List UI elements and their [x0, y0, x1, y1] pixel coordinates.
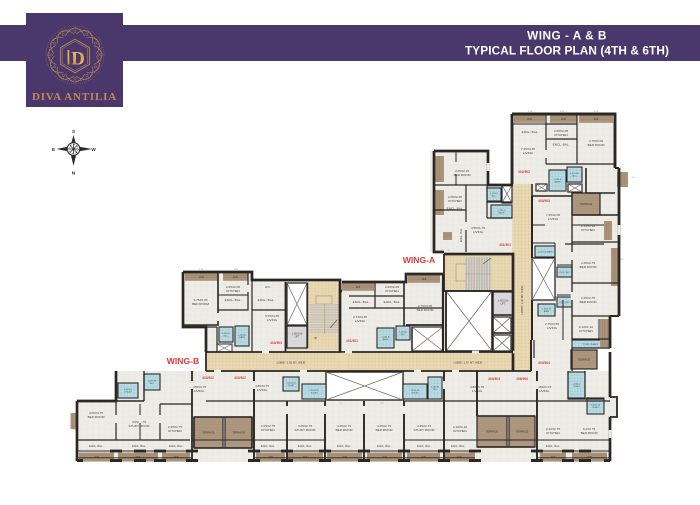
svg-text:1.2X1.85: 1.2X1.85	[570, 173, 580, 175]
svg-text:1.2X1.8: 1.2X1.8	[554, 179, 562, 181]
svg-text:ENCL. BAL.: ENCL. BAL.	[261, 444, 275, 448]
svg-text:W.C.: W.C.	[265, 285, 271, 289]
svg-text:ENCL. BAL.: ENCL. BAL.	[337, 444, 351, 448]
svg-text:W.B: W.B	[422, 278, 427, 281]
svg-text:402/902: 402/902	[234, 376, 246, 380]
svg-text:BATH: BATH	[544, 310, 550, 313]
svg-text:UP: UP	[314, 336, 318, 340]
svg-text:W.C.: W.C.	[572, 176, 577, 178]
svg-text:1.5X1.2: 1.5X1.2	[124, 389, 132, 391]
svg-text:1.5X1.2 W.C.: 1.5X1.2 W.C.	[559, 272, 571, 274]
svg-text:BATH: BATH	[239, 336, 245, 339]
svg-text:W.C.: W.C.	[433, 389, 438, 391]
svg-text:W.C.: W.C.	[150, 383, 155, 385]
svg-text:ENCL. BAL.: ENCL. BAL.	[546, 444, 560, 448]
svg-text:1.75X2.35 BATH: 1.75X2.35 BATH	[538, 250, 553, 253]
svg-text:BED ROOM: BED ROOM	[192, 302, 209, 306]
svg-text:1.2X1.2: 1.2X1.2	[222, 333, 230, 335]
svg-text:C.L.: C.L.	[339, 403, 343, 405]
svg-text:E: E	[52, 147, 55, 152]
svg-text:N: N	[72, 171, 76, 177]
svg-text:1.2X1.2: 1.2X1.2	[498, 210, 506, 212]
svg-text:ENCL. BAL.: ENCL. BAL.	[522, 130, 539, 134]
svg-text:TERRACE: TERRACE	[516, 430, 529, 434]
svg-text:LIVING: LIVING	[523, 151, 534, 155]
svg-text:WING - A & B: WING - A & B	[527, 29, 607, 43]
svg-text:401/901: 401/901	[499, 243, 511, 247]
svg-text:W.B: W.B	[527, 118, 532, 121]
svg-text:BED ROOM: BED ROOM	[588, 143, 605, 147]
svg-text:TERRACE: TERRACE	[202, 431, 215, 435]
svg-text:STUDY ROOM: STUDY ROOM	[414, 428, 435, 432]
svg-text:BED ROOM: BED ROOM	[376, 428, 393, 432]
svg-text:KITCHEN: KITCHEN	[546, 431, 560, 435]
svg-text:1.2X1.8: 1.2X1.8	[399, 331, 407, 333]
svg-text:ENCL. BAL.: ENCL. BAL.	[459, 228, 463, 243]
svg-text:402/902: 402/902	[202, 376, 214, 380]
svg-text:1.2X1.8: 1.2X1.8	[238, 334, 246, 336]
svg-text:TERRACE: TERRACE	[232, 431, 245, 435]
svg-text:TOILET: TOILET	[573, 386, 581, 388]
svg-text:TOILET: TOILET	[288, 385, 296, 387]
svg-text:ENCL. BAL.: ENCL. BAL.	[451, 444, 465, 448]
svg-text:ENCL. BAL.: ENCL. BAL.	[89, 444, 103, 448]
svg-text:1.45X1.80: 1.45X1.80	[292, 334, 303, 336]
svg-text:W.C.: W.C.	[224, 336, 229, 338]
svg-text:LIVING: LIVING	[539, 389, 550, 393]
svg-text:LIFT: LIFT	[295, 336, 300, 338]
svg-text:TOILET: TOILET	[411, 393, 419, 395]
svg-text:BED ROOM: BED ROOM	[580, 265, 597, 269]
svg-text:1.2X1.2: 1.2X1.2	[490, 193, 498, 195]
svg-text:WING-B: WING-B	[167, 356, 199, 366]
svg-text:2.10X1.25: 2.10X1.25	[309, 390, 319, 392]
svg-text:403/903: 403/903	[270, 341, 282, 345]
svg-text:406/906: 406/906	[516, 377, 528, 381]
svg-text:KITCHEN: KITCHEN	[261, 428, 275, 432]
svg-text:STUDY ROOM: STUDY ROOM	[295, 428, 316, 432]
svg-text:ENCL. BAL.: ENCL. BAL.	[377, 444, 391, 448]
svg-text:LIVING: LIVING	[355, 319, 366, 323]
svg-text:KITCHEN: KITCHEN	[168, 429, 182, 433]
svg-text:LIVING: LIVING	[547, 326, 558, 330]
svg-text:LIVING: LIVING	[548, 217, 559, 221]
svg-text:403/903: 403/903	[538, 199, 550, 203]
svg-text:LIVING: LIVING	[257, 388, 268, 392]
svg-text:ENCL. BAL.: ENCL. BAL.	[353, 300, 370, 304]
svg-text:BED ROOM: BED ROOM	[88, 415, 105, 419]
svg-text:KITCHEN: KITCHEN	[453, 429, 467, 433]
svg-text:S: S	[72, 129, 75, 134]
svg-text:ENCL. BAL.: ENCL. BAL.	[384, 300, 401, 304]
svg-text:1.2X2.5: 1.2X2.5	[573, 383, 581, 385]
svg-text:7.50X1.20 BATH: 7.50X1.20 BATH	[583, 343, 598, 346]
svg-text:401/901: 401/901	[346, 339, 358, 343]
svg-text:W.C.: W.C.	[492, 196, 497, 198]
svg-text:LOBBY 1.40 MT. WIDE: LOBBY 1.40 MT. WIDE	[520, 285, 524, 314]
svg-text:1.5X1.85: 1.5X1.85	[411, 390, 420, 392]
svg-text:LIFT: LIFT	[501, 303, 506, 305]
svg-text:LOBBY 1.97 MT. WIDE: LOBBY 1.97 MT. WIDE	[454, 361, 483, 365]
svg-text:BATH: BATH	[383, 338, 389, 341]
svg-text:ENCL. BAL.: ENCL. BAL.	[132, 444, 146, 448]
svg-text:STUDY ROOM: STUDY ROOM	[129, 424, 150, 428]
svg-text:W.B: W.B	[594, 118, 599, 121]
svg-text:BATH: BATH	[555, 181, 561, 184]
svg-text:KITCHEN: KITCHEN	[226, 289, 240, 293]
svg-text:C.B.: C.B.	[380, 403, 385, 405]
svg-text:W.B: W.B	[233, 276, 238, 279]
svg-text:1.2X1.85: 1.2X1.85	[148, 380, 157, 382]
svg-text:ENCL. BAL.: ENCL. BAL.	[225, 298, 242, 302]
svg-text:LIVING: LIVING	[473, 230, 484, 234]
svg-text:KITCHEN: KITCHEN	[385, 289, 399, 293]
svg-text:ENCL. BAL.: ENCL. BAL.	[298, 444, 312, 448]
svg-text:DIVA ANTILIA: DIVA ANTILIA	[32, 91, 117, 103]
svg-text:W.B: W.B	[199, 276, 204, 279]
svg-text:TERRACE: TERRACE	[580, 202, 593, 206]
svg-text:TOILET: TOILET	[310, 393, 318, 395]
svg-text:LIVING: LIVING	[267, 318, 278, 322]
svg-text:KITCHEN: KITCHEN	[581, 228, 595, 232]
svg-text:TYPICAL FLOOR PLAN (4TH & 6TH: TYPICAL FLOOR PLAN (4TH & 6TH)	[465, 44, 669, 58]
svg-text:ENCL. BAL.: ENCL. BAL.	[258, 298, 275, 302]
svg-text:TERRACE: TERRACE	[578, 358, 591, 362]
svg-text:LOBBY 1.55 MT. WIDE: LOBBY 1.55 MT. WIDE	[277, 361, 306, 365]
svg-text:1.2X1.8: 1.2X1.8	[382, 336, 390, 338]
svg-text:1.45X1.80: 1.45X1.80	[498, 301, 509, 303]
svg-text:ENCL. BAL.: ENCL. BAL.	[417, 444, 431, 448]
svg-text:W.C.: W.C.	[401, 334, 406, 336]
svg-text:W: W	[91, 147, 96, 152]
svg-text:404/904: 404/904	[538, 361, 550, 365]
svg-text:WING-A: WING-A	[403, 255, 435, 265]
svg-text:D: D	[71, 49, 85, 70]
svg-text:1.5X1.2 W.C.: 1.5X1.2 W.C.	[559, 302, 571, 304]
svg-text:LIVING: LIVING	[194, 389, 205, 393]
svg-text:BED ROOM: BED ROOM	[581, 431, 598, 435]
svg-text:404/904: 404/904	[488, 377, 500, 381]
svg-text:BATH: BATH	[499, 212, 505, 215]
svg-text:TOILET: TOILET	[124, 392, 132, 394]
svg-text:BED ROOM: BED ROOM	[336, 428, 353, 432]
svg-text:BED ROOM: BED ROOM	[580, 300, 597, 304]
svg-text:KITCHEN: KITCHEN	[579, 329, 593, 333]
svg-text:TERRACE: TERRACE	[486, 430, 499, 434]
svg-text:ENCL. BAL.: ENCL. BAL.	[553, 143, 570, 147]
svg-text:ENCL. BAL.: ENCL. BAL.	[169, 444, 183, 448]
svg-text:402/902: 402/902	[518, 170, 530, 174]
svg-text:TOILET: TOILET	[592, 407, 600, 409]
svg-text:KITCHEN: KITCHEN	[554, 133, 568, 137]
svg-text:W.B: W.B	[561, 118, 566, 121]
svg-text:W.B: W.B	[356, 286, 361, 289]
svg-text:KITCHEN: KITCHEN	[448, 199, 462, 203]
